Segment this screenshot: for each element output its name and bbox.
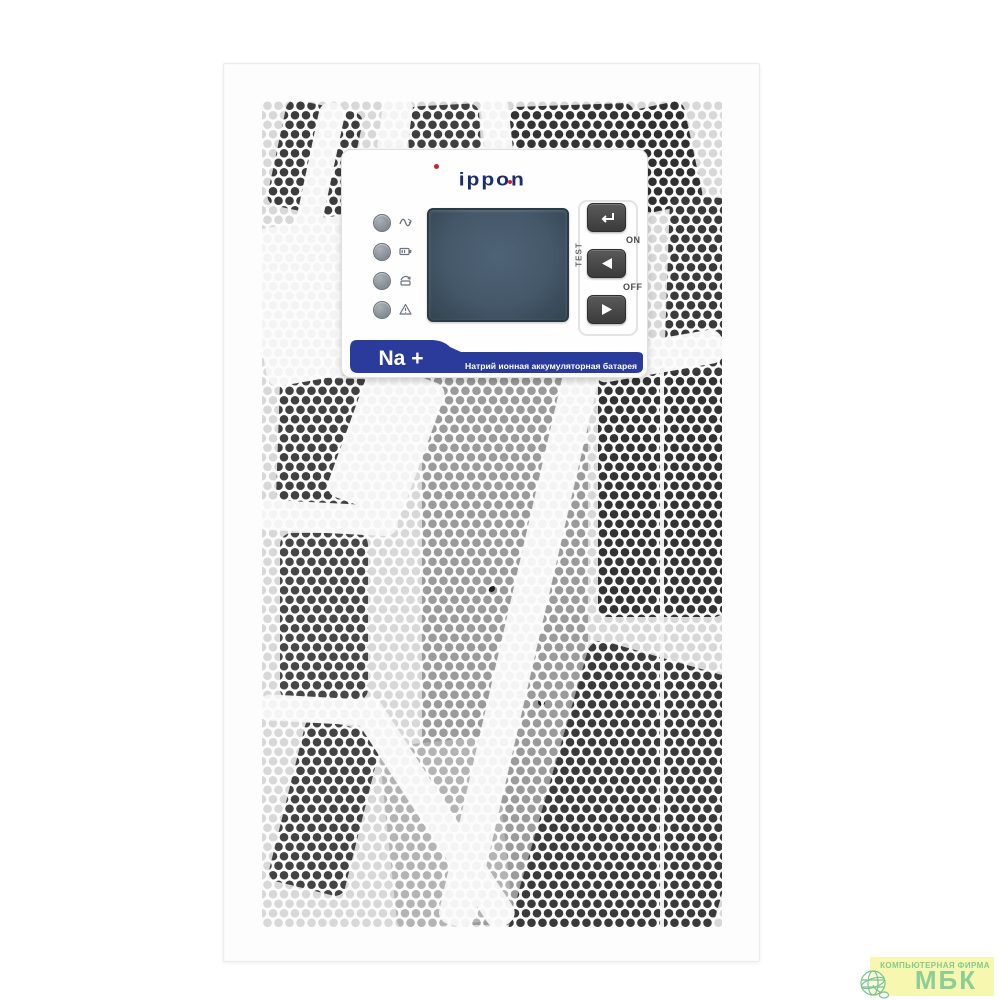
led-row-battery-mode — [373, 239, 433, 268]
ups-device: ippon — [223, 63, 760, 962]
bypass-led — [373, 272, 391, 290]
status-led-column — [373, 210, 433, 326]
store-watermark: КОМПЬЮТЕРНАЯ ФИРМА МБК — [858, 954, 998, 1000]
fault-led — [373, 301, 391, 319]
brand-logo-text: ippon — [459, 169, 526, 190]
logo-red-dot-i — [434, 164, 439, 169]
watermark-mbk-text: МБК — [898, 967, 994, 993]
down-button — [587, 295, 626, 324]
up-test-button — [587, 249, 626, 278]
left-triangle-icon — [599, 256, 615, 271]
led-row-fault — [373, 297, 433, 326]
fault-warning-icon — [399, 303, 412, 316]
line-mode-icon — [399, 216, 412, 229]
product-photo: ippon — [0, 0, 1000, 1000]
bypass-icon — [399, 274, 412, 287]
badge-subtitle: Натрий ионная аккумуляторная батарея — [465, 361, 637, 371]
enter-return-icon — [598, 211, 616, 225]
off-label: OFF — [623, 282, 643, 292]
right-triangle-icon — [599, 302, 615, 317]
control-panel: ippon — [341, 149, 648, 378]
enter-button — [587, 203, 626, 232]
badge-title: Na + — [379, 347, 424, 370]
na-plus-banner: Na + Натрий ионная аккумуляторная батаре… — [347, 339, 645, 375]
line-mode-led — [373, 214, 391, 232]
led-row-bypass — [373, 268, 433, 297]
battery-mode-led — [373, 243, 391, 261]
battery-mode-icon — [399, 245, 412, 258]
globe-icon — [858, 968, 892, 1000]
brand-logo: ippon — [342, 168, 647, 192]
lcd-screen — [427, 208, 569, 322]
led-row-line-mode — [373, 210, 433, 239]
test-label: TEST — [575, 240, 584, 270]
on-label: ON — [626, 235, 641, 245]
